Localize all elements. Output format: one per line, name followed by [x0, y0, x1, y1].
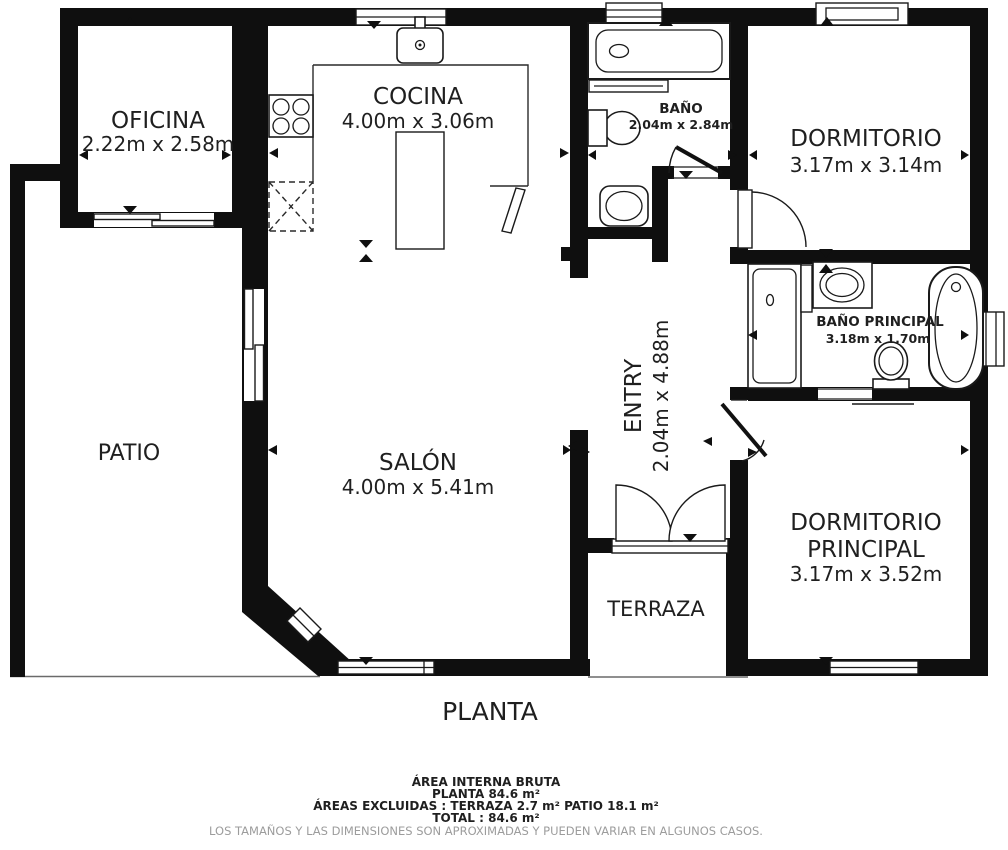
bano-label: BAÑO [659, 100, 703, 117]
salon-label: SALÓN [379, 448, 457, 476]
sliding-door-oficina [94, 213, 214, 227]
wall-hall-dormitorio-upper [730, 8, 748, 190]
bathtub-icon [588, 23, 730, 79]
dormp-dims: 3.17m x 3.52m [790, 562, 943, 586]
wall-nub [561, 247, 571, 261]
stove-icon [269, 95, 313, 137]
wall-oficina-west [60, 8, 78, 228]
wall-patio-west [10, 164, 25, 677]
floor-plan-page: OFICINA 2.22m x 2.58m COCINA 4.00m x 3.0… [0, 0, 1008, 850]
bath-shelf-icon [589, 80, 668, 92]
oficina-dims: 2.22m x 2.58m [82, 132, 235, 156]
window-salon [338, 661, 434, 674]
wall-bano-door-left [652, 166, 674, 179]
patio-label: PATIO [98, 441, 160, 466]
cocina-dims: 4.00m x 3.06m [342, 109, 495, 133]
entry-dims: 2.04m x 4.88m [649, 320, 673, 473]
wall-salon-east [570, 430, 588, 676]
summary-total: TOTAL : 84.6 m² [432, 811, 539, 825]
wall-entry-south-stub [588, 538, 614, 553]
banop-sink-icon [813, 262, 872, 308]
sliding-door-patio-salon [244, 289, 264, 401]
dormitorio-label: DORMITORIO [790, 126, 941, 152]
wall-patio-salon [242, 228, 268, 592]
entry-label: ENTRY [621, 358, 647, 433]
floor-plan-drawing: OFICINA 2.22m x 2.58m COCINA 4.00m x 3.0… [0, 0, 1008, 850]
wall-cocina-east [570, 8, 588, 278]
plan-title: PLANTA [442, 697, 538, 726]
bano-dims: 2.04m x 2.84m [629, 117, 734, 132]
dormitorio-dims: 3.17m x 3.14m [790, 153, 943, 177]
bano-principal-label: BAÑO PRINCIPAL [816, 313, 944, 330]
terraza-label: TERRAZA [606, 597, 705, 621]
oficina-label: OFICINA [111, 108, 205, 134]
bath-sink-icon [600, 186, 648, 226]
banop-toilet-icon [873, 342, 909, 389]
salon-dims: 4.00m x 5.41m [342, 475, 495, 499]
wall-oficina-cocina [232, 8, 268, 228]
wall-bano-alcove-east [652, 166, 668, 262]
cocina-label: COCINA [373, 84, 463, 110]
summary-disclaimer: LOS TAMAÑOS Y LAS DIMENSIONES SON APROXI… [209, 823, 763, 838]
dormp-label-line1: DORMITORIO [790, 510, 941, 536]
dormp-label-line2: PRINCIPAL [807, 537, 925, 563]
window-bano [606, 3, 662, 25]
wall-terraza-east [726, 538, 748, 676]
bano-principal-dims: 3.18m x 1.70m [826, 331, 931, 346]
window-dormp [830, 661, 918, 674]
kitchen-island [396, 132, 444, 249]
